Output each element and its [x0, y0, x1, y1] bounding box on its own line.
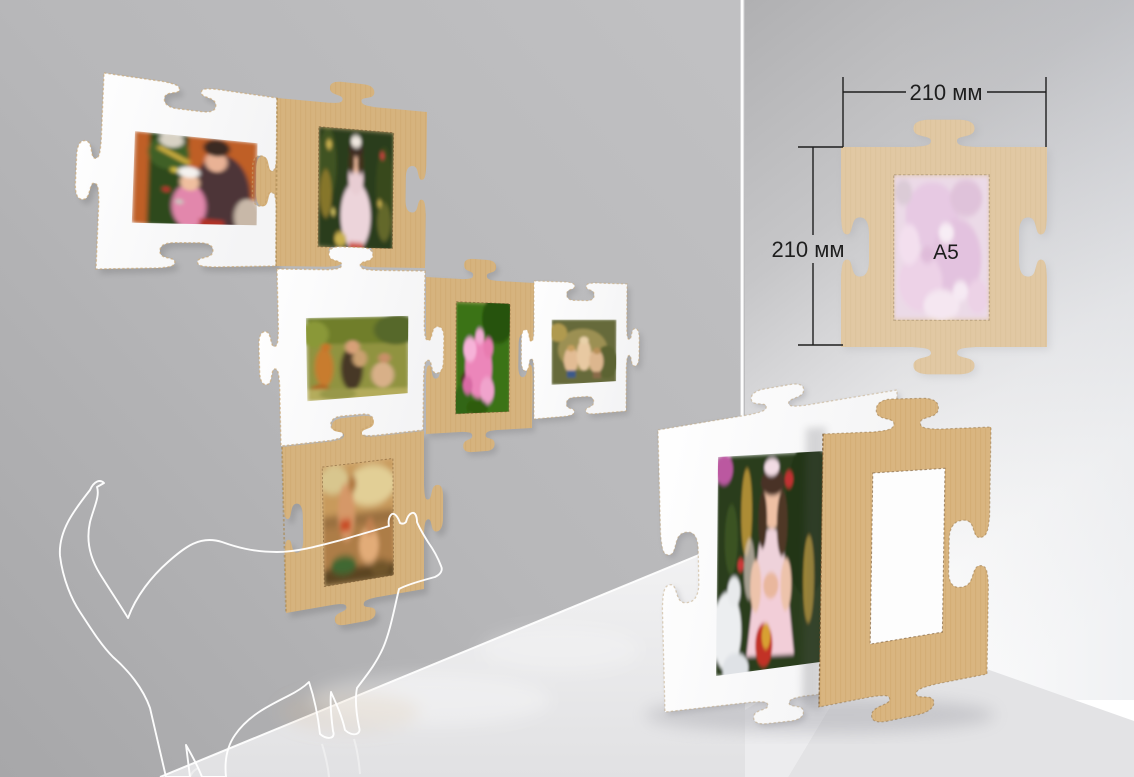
svg-text:210 мм: 210 мм: [909, 80, 982, 105]
svg-text:A5: A5: [933, 241, 959, 264]
svg-text:210 мм: 210 мм: [771, 237, 844, 262]
